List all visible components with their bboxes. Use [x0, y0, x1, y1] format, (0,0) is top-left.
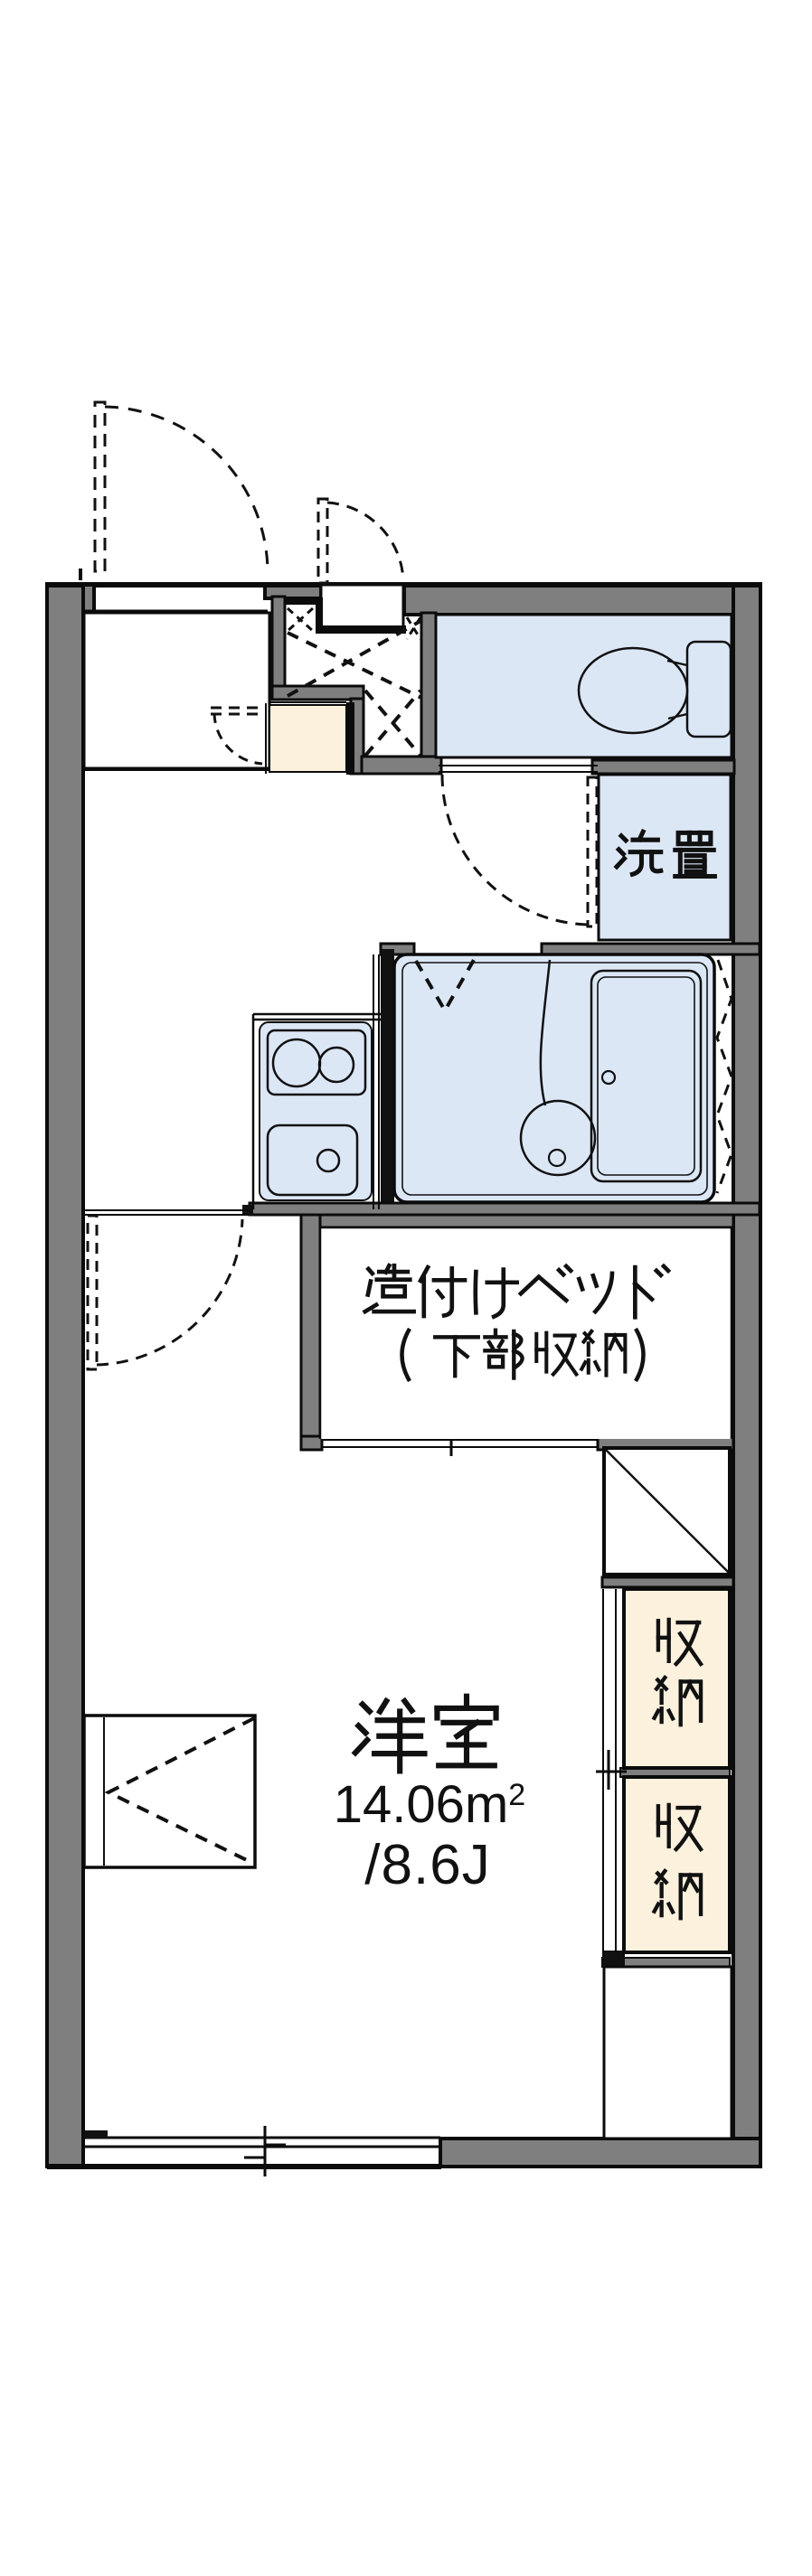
svg-text:14.06m2: 14.06m2: [334, 1775, 525, 1834]
svg-text:/8.6J: /8.6J: [364, 1834, 490, 1896]
